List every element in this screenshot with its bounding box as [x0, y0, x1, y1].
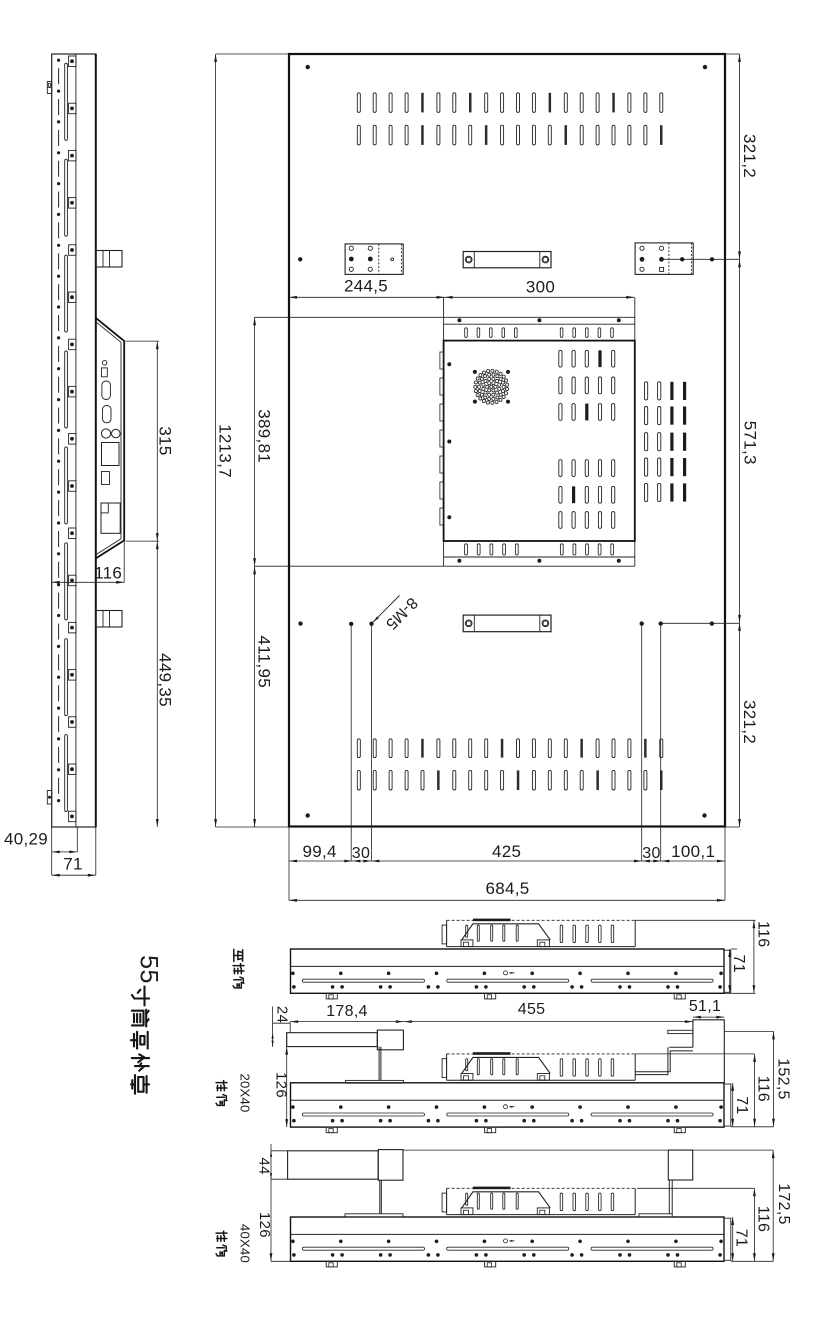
svg-text:300: 300	[526, 278, 555, 297]
svg-text:40X40: 40X40	[238, 1224, 253, 1263]
svg-text:126: 126	[273, 1072, 290, 1098]
svg-text:321,2: 321,2	[740, 134, 759, 178]
svg-text:30: 30	[642, 845, 660, 862]
svg-text:71: 71	[733, 1229, 750, 1247]
svg-text:51,1: 51,1	[689, 998, 721, 1015]
svg-text:244,5: 244,5	[344, 277, 388, 296]
svg-text:411,95: 411,95	[255, 636, 274, 689]
svg-text:178,4: 178,4	[326, 1003, 368, 1020]
svg-text:71: 71	[733, 1096, 750, 1114]
svg-text:99,4: 99,4	[302, 842, 336, 861]
svg-text:24: 24	[274, 1006, 291, 1023]
svg-text:1213,7: 1213,7	[216, 424, 235, 478]
svg-text:116: 116	[94, 564, 122, 583]
svg-text:55: 55	[134, 955, 162, 984]
svg-text:315: 315	[156, 426, 175, 455]
svg-text:321,2: 321,2	[740, 700, 759, 744]
svg-text:571,3: 571,3	[741, 421, 760, 465]
svg-text:116: 116	[755, 1076, 772, 1102]
svg-text:116: 116	[755, 921, 772, 947]
svg-text:455: 455	[518, 1001, 546, 1018]
svg-text:116: 116	[755, 1206, 772, 1232]
svg-text:126: 126	[256, 1212, 273, 1238]
svg-text:100,1: 100,1	[671, 842, 715, 861]
svg-text:71: 71	[730, 954, 747, 972]
svg-text:44: 44	[256, 1157, 273, 1174]
svg-text:389,81: 389,81	[255, 409, 274, 463]
svg-text:30: 30	[352, 845, 370, 862]
svg-text:172,5: 172,5	[775, 1183, 792, 1225]
svg-text:152,5: 152,5	[775, 1058, 792, 1100]
svg-text:449,35: 449,35	[156, 653, 175, 707]
svg-text:425: 425	[492, 842, 521, 861]
svg-text:40,29: 40,29	[4, 830, 48, 849]
svg-text:684,5: 684,5	[485, 879, 529, 898]
svg-text:20X40: 20X40	[238, 1073, 253, 1112]
svg-text:71: 71	[63, 855, 83, 874]
